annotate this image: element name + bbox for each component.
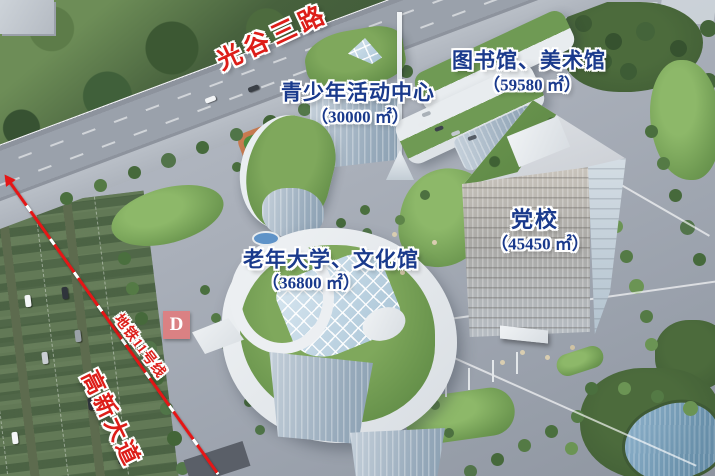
building-cultural-center-entrance-glass [350, 428, 445, 476]
plaza-umbrellas [392, 232, 397, 237]
tree-row-campus-west [200, 285, 210, 295]
flag-pole [516, 352, 518, 374]
background-building-block [0, 0, 54, 34]
tree-row-along-road [60, 192, 73, 205]
tree-row-south [545, 425, 558, 438]
metro-exit-d-label: D [170, 314, 184, 336]
flag-pole [468, 368, 470, 390]
building-label-party-school-area: （45450 ㎡） [491, 236, 589, 253]
lane-marking [0, 211, 12, 476]
plaza-umbrellas [520, 350, 525, 355]
tree-row-east [645, 125, 658, 138]
building-party-school-side [588, 158, 626, 334]
aerial-rendering: D 光谷三路 青少年活动中心 （30000 ㎡） 图书馆、美术馆 （59580 … [0, 0, 715, 476]
tree-cluster-northeast [575, 15, 592, 32]
flag-pole [492, 360, 494, 382]
car [74, 330, 81, 343]
building-label-library-art-museum-name: 图书馆、美术馆 [452, 51, 606, 72]
car [41, 352, 48, 365]
roof-pool [252, 231, 280, 246]
building-label-library-art-museum-area: （59580 ㎡） [483, 77, 581, 94]
tree-row-avenue-edge [118, 252, 131, 265]
lawn-east [650, 60, 715, 180]
tree-row-pond [585, 382, 598, 395]
building-cultural-center-glass-facade [265, 352, 373, 444]
metro-exit-d-marker: D [163, 311, 190, 339]
building-label-senior-university-cultural-center-area: （36800 ㎡） [262, 275, 360, 292]
car [24, 295, 31, 308]
building-label-youth-center-name: 青少年活动中心 [281, 83, 435, 104]
tree-cluster-plaza [360, 205, 370, 215]
car [61, 287, 68, 300]
building-label-senior-university-cultural-center-name: 老年大学、文化馆 [243, 250, 419, 271]
lawn-island [554, 343, 606, 379]
car [11, 432, 18, 445]
building-label-youth-center-area: （30000 ㎡） [311, 109, 409, 126]
building-label-party-school-name: 党校 [511, 209, 559, 231]
